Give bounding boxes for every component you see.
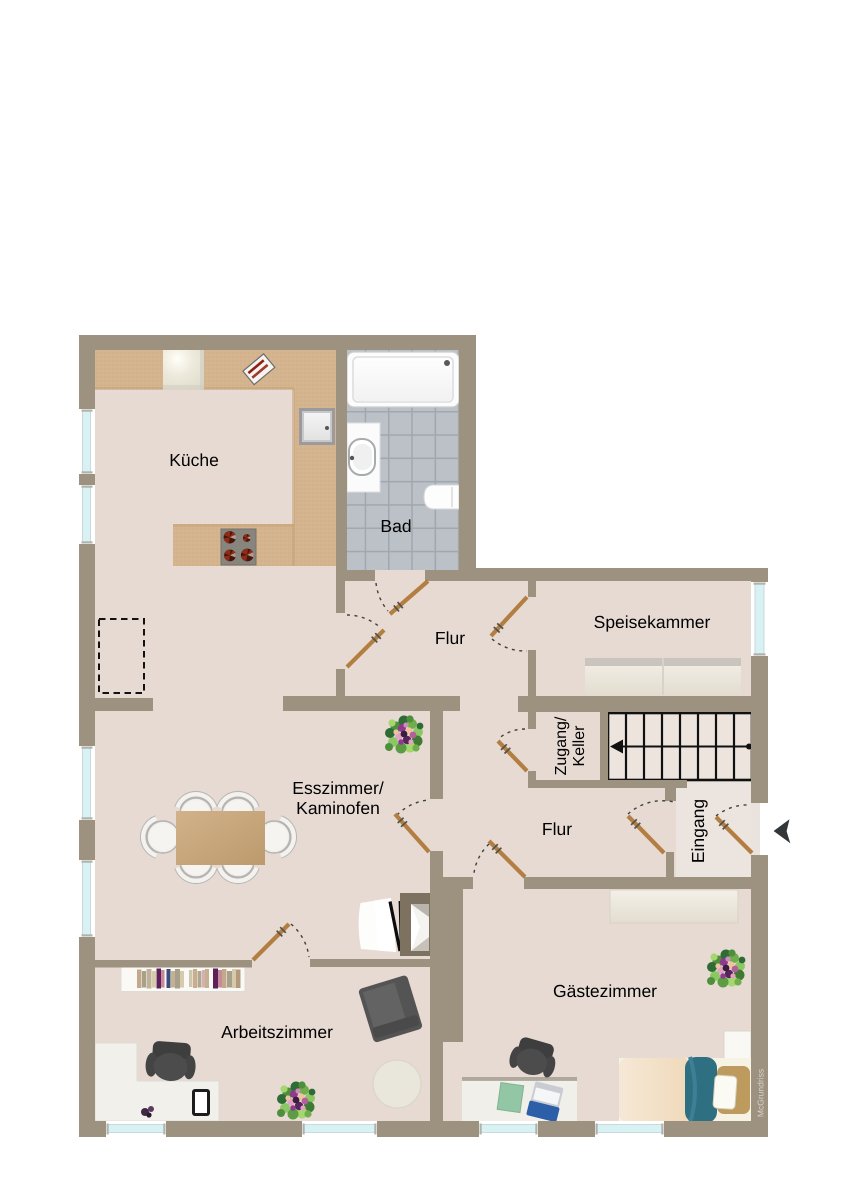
- svg-text:Flur: Flur: [435, 628, 465, 648]
- svg-text:Gästezimmer: Gästezimmer: [553, 981, 657, 1001]
- svg-text:Esszimmer/: Esszimmer/: [292, 778, 384, 798]
- svg-text:Küche: Küche: [169, 450, 219, 470]
- svg-text:Zugang/: Zugang/: [553, 716, 570, 775]
- svg-text:Bad: Bad: [380, 516, 411, 536]
- svg-text:Kaminofen: Kaminofen: [296, 798, 380, 818]
- svg-text:McGrundriss: McGrundriss: [756, 1069, 766, 1117]
- svg-text:Keller: Keller: [571, 725, 588, 767]
- svg-text:Flur: Flur: [542, 819, 572, 839]
- svg-text:Arbeitszimmer: Arbeitszimmer: [221, 1022, 333, 1042]
- svg-text:Speisekammer: Speisekammer: [594, 612, 711, 632]
- svg-text:Eingang: Eingang: [688, 799, 708, 863]
